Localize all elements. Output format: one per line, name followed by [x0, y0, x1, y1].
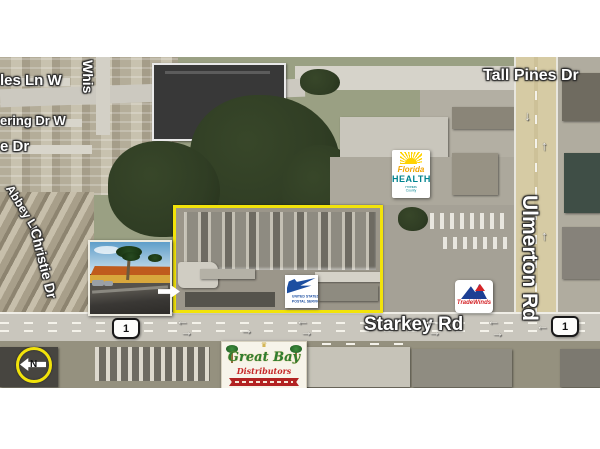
property-boundary-highlight: [173, 205, 383, 313]
usps-logo-line1: UNITED STATES: [292, 295, 311, 298]
whispering-road: [96, 57, 110, 135]
great-bay-logo: ♛ Great Bay Distributors: [221, 341, 307, 388]
photo-vehicle: [104, 281, 113, 286]
traffic-arrow-icon: [491, 326, 504, 339]
street-label-les-ln-w: les Ln W: [0, 73, 62, 88]
aerial-map-canvas: UNITED STATES POSTAL SERVICE TradeWinds …: [0, 57, 600, 388]
east-building-3: [562, 227, 600, 279]
traffic-arrow-icon: [240, 323, 253, 336]
usps-logo: UNITED STATES POSTAL SERVICE: [285, 275, 318, 308]
photo-palm-fronds: [148, 254, 162, 262]
traffic-arrow-icon: [180, 325, 193, 338]
route-number: 1: [123, 323, 129, 335]
usps-eagle-icon: [287, 278, 316, 294]
florida-health-line2: HEALTH: [392, 174, 430, 184]
north-indicator: N: [16, 347, 52, 383]
commercial-building-2: [452, 153, 498, 195]
photo-palm-fronds: [122, 252, 140, 261]
street-label-e-dr: e Dr: [0, 139, 29, 154]
traffic-arrow-icon: [536, 319, 549, 332]
traffic-arrow-icon: [300, 325, 313, 338]
truck-trailer-row-1: [430, 213, 510, 229]
tree-yard-1: [398, 207, 428, 231]
route-1-shield-west: 1: [112, 318, 140, 339]
south-warehouse-roof-1: [305, 347, 410, 387]
sun-icon: [405, 158, 417, 164]
route-1-shield-east: 1: [551, 316, 579, 337]
street-label-whispering: Whis: [81, 60, 95, 93]
street-label-starkey-rd: Starkey Rd: [364, 315, 463, 334]
traffic-arrow-icon: [524, 109, 531, 122]
tradewinds-logo: TradeWinds: [455, 280, 493, 313]
great-bay-name: Great Bay: [222, 350, 306, 365]
truck-trailer-row-2: [443, 237, 509, 249]
tradewinds-sails-icon: [461, 284, 487, 299]
south-warehouse-roof-2: [412, 349, 512, 387]
tree-top-1: [300, 69, 340, 95]
tradewinds-logo-name: TradeWinds: [455, 300, 493, 306]
traffic-arrow-icon: [428, 325, 441, 338]
south-trailer-line: [298, 343, 416, 345]
south-truck-row: [95, 347, 210, 381]
ribbon-banner: [229, 378, 299, 386]
florida-health-logo: Florida HEALTH Pinellas County: [392, 150, 430, 198]
photo-vehicle: [92, 280, 104, 286]
street-label-ering-dr-w: ering Dr W: [0, 114, 66, 127]
route-number: 1: [562, 321, 568, 333]
street-label-tall-pines: Tall Pines Dr: [483, 68, 579, 84]
great-bay-subtitle: Distributors: [222, 366, 306, 376]
usps-logo-line2: POSTAL SERVICE: [292, 300, 311, 303]
east-building-2: [564, 153, 600, 213]
florida-health-subtitle: Pinellas County: [401, 186, 422, 193]
traffic-arrow-icon: [541, 139, 548, 152]
aerial-map-flyer: UNITED STATES POSTAL SERVICE TradeWinds …: [0, 0, 600, 449]
north-label: N: [30, 359, 37, 370]
street-label-ulmerton-rd: Ulmerton Rd: [519, 195, 540, 321]
south-building-2: [560, 349, 600, 387]
commercial-building-1: [452, 107, 514, 129]
warehouse-roof-line: [165, 71, 270, 74]
traffic-arrow-icon: [541, 229, 548, 242]
property-inset-photo: [88, 240, 172, 316]
florida-health-line1: Florida: [392, 165, 430, 174]
tradewinds-peak-icon: [475, 284, 485, 291]
